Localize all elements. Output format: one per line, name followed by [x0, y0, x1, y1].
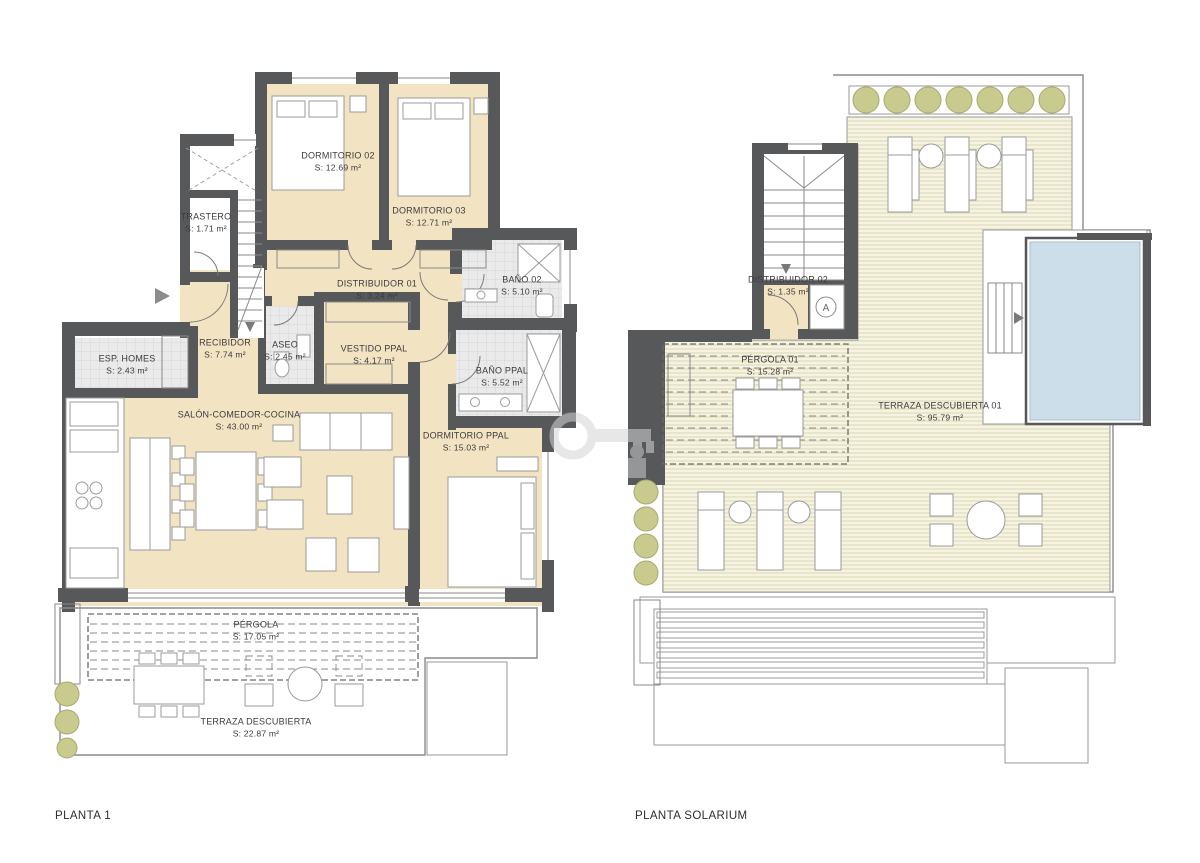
elevator-badge: A: [823, 303, 830, 314]
room-label-dormitorio-ppal: DORMITORIO PPAL S: 15.03 m²: [423, 430, 509, 453]
room-label-recibidor: RECIBIDOR S: 7.74 m²: [199, 337, 251, 360]
room-label-distribuidor-01: DISTRIBUIDOR 01 S: 3.24 m²: [337, 278, 417, 301]
room-label-pergola-01: PÉRGOLA 01 S: 15.28 m²: [741, 354, 799, 377]
terrace-table: [134, 666, 204, 704]
room-label-bano-02: BAÑO 02 S: 5.10 m²: [501, 274, 543, 297]
room-label-dormitorio-03: DORMITORIO 03 S: 12.71 m²: [392, 205, 465, 228]
plant-icon: [55, 682, 79, 706]
sun-lounger: [945, 137, 969, 212]
room-label-terraza-descubierta-01: TERRAZA DESCUBIERTA 01 S: 95.79 m²: [878, 400, 1002, 423]
plan2-title: PLANTA SOLARIUM: [635, 810, 748, 822]
round-table: [967, 501, 1005, 539]
room-label-trastero: TRASTERO S: 1.71 m²: [181, 211, 232, 234]
pool: [1030, 242, 1140, 420]
plant-icon: [55, 710, 79, 734]
sofa: [300, 413, 392, 450]
room-label-distribuidor-02: DISTRIBUIDOR 02 S: 1.35 m²: [748, 274, 828, 297]
sun-lounger: [1002, 137, 1026, 212]
sun-lounger: [698, 492, 724, 570]
plan2-louvers: [640, 597, 1115, 763]
plant-icon: [634, 507, 658, 531]
plan2-top-planter: [849, 86, 1069, 114]
plant-icon: [634, 534, 658, 558]
plant-icon: [634, 480, 658, 504]
floorplan-sheet: { "plan1": { "title": "PLANTA 1", "rooms…: [0, 0, 1200, 863]
tv-unit: [394, 457, 409, 529]
room-label-pergola: PÉRGOLA S: 17.05 m²: [233, 619, 280, 642]
plan2-stair-block: A: [752, 138, 858, 339]
plan2-pool-area: [983, 230, 1152, 426]
sun-lounger: [815, 492, 841, 570]
plant-icon: [57, 738, 77, 758]
room-label-esp-homes: ESP. HOMES S: 2.43 m²: [99, 353, 156, 376]
room-label-vestido-ppal: VESTIDO PPAL S: 4.17 m²: [341, 343, 408, 366]
plan1-title: PLANTA 1: [55, 810, 111, 822]
plant-icon: [634, 561, 658, 585]
sun-lounger: [757, 492, 783, 570]
planter-grid: [55, 604, 80, 684]
plan1-drawing: [55, 72, 577, 758]
room-label-terraza-descubierta: TERRAZA DESCUBIERTA S: 22.87 m²: [201, 716, 312, 739]
dining-table: [196, 452, 256, 530]
room-label-salon-comedor-cocina: SALÓN-COMEDOR-COCINA S: 43.00 m²: [178, 409, 301, 432]
pergola-table: [733, 390, 803, 436]
room-label-bano-ppal: BAÑO PPAL S: 5.52 m²: [476, 365, 528, 388]
room-label-aseo: ASEO S: 2.45 m²: [264, 339, 306, 362]
entrance-arrow-icon: [155, 288, 170, 304]
sun-lounger: [888, 137, 912, 212]
room-label-dormitorio-02: DORMITORIO 02 S: 12.69 m²: [301, 150, 374, 173]
